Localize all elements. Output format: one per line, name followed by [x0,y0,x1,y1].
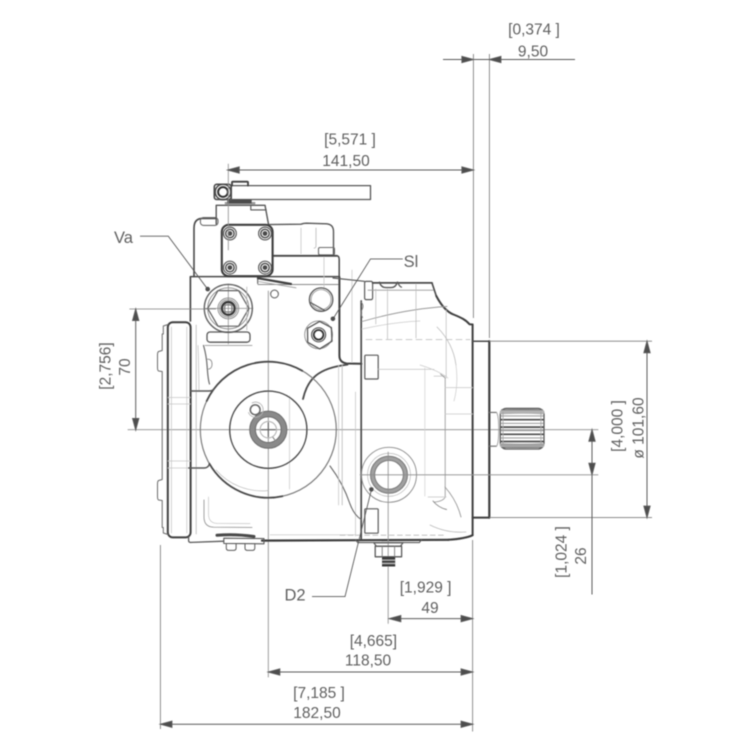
svg-text:[4,665]: [4,665] [350,633,397,650]
svg-text:[5,571 ]: [5,571 ] [324,132,376,149]
svg-text:[7,185 ]: [7,185 ] [293,685,345,702]
svg-text:49: 49 [421,600,438,617]
svg-text:D2: D2 [284,587,305,605]
svg-text:182,50: 182,50 [293,705,341,722]
svg-text:9,50: 9,50 [518,44,549,61]
svg-text:[0,374 ]: [0,374 ] [508,22,560,39]
svg-text:70: 70 [117,358,134,376]
svg-text:[4,000 ]: [4,000 ] [610,400,627,452]
svg-text:141,50: 141,50 [322,153,370,170]
svg-text:[1,929 ]: [1,929 ] [400,580,452,597]
svg-text:Sl: Sl [404,253,419,271]
svg-text:[1,024 ]: [1,024 ] [554,526,571,578]
svg-text:ø 101,60: ø 101,60 [631,397,648,459]
svg-text:[2,756]: [2,756] [98,342,115,389]
svg-text:Va: Va [114,229,134,247]
svg-text:118,50: 118,50 [345,653,392,670]
svg-text:26: 26 [573,547,590,564]
